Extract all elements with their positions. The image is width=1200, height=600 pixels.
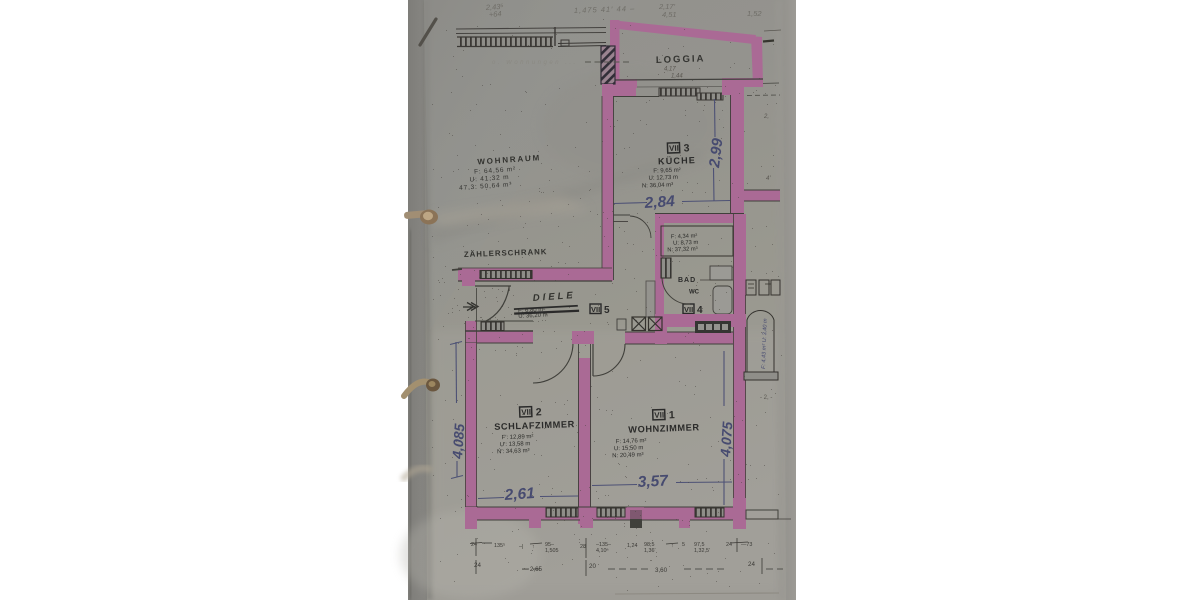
svg-text:1,505: 1,505 xyxy=(545,548,559,554)
svg-text:2,84: 2,84 xyxy=(643,193,676,212)
svg-text:N: 20,49 m³: N: 20,49 m³ xyxy=(612,452,644,459)
svg-text:2,61: 2,61 xyxy=(503,485,535,504)
svg-text:WC: WC xyxy=(689,290,700,296)
svg-text:VII: VII xyxy=(684,305,693,314)
svg-text:N: 37,32 m³: N: 37,32 m³ xyxy=(667,246,698,253)
svg-text:3: 3 xyxy=(683,142,689,154)
svg-text:N: 36,04 m³: N: 36,04 m³ xyxy=(642,182,674,189)
svg-text:BAD: BAD xyxy=(678,277,696,284)
svg-text:1,52: 1,52 xyxy=(747,9,762,18)
svg-text:↑: ↑ xyxy=(532,544,535,550)
svg-text:1,24: 1,24 xyxy=(627,543,638,549)
svg-text:–|: –| xyxy=(519,544,523,550)
svg-text:5: 5 xyxy=(682,542,685,548)
svg-text:- 2, -: - 2, - xyxy=(760,395,772,401)
svg-text:VII: VII xyxy=(591,305,600,314)
svg-text:2: 2 xyxy=(536,406,542,418)
svg-text:28: 28 xyxy=(580,544,586,550)
svg-text:VII: VII xyxy=(669,144,679,153)
svg-text:1: 1 xyxy=(669,409,675,421)
svg-text:VII: VII xyxy=(654,411,664,420)
svg-text:24: 24 xyxy=(748,561,755,568)
svg-text:F′: 12,89 m²: F′: 12,89 m² xyxy=(502,434,534,441)
svg-text:135⁵: 135⁵ xyxy=(494,543,505,549)
svg-text:1,32,5′: 1,32,5′ xyxy=(694,548,710,554)
svg-text:U: 12,73 m: U: 12,73 m xyxy=(649,175,679,182)
svg-text:3,60: 3,60 xyxy=(655,567,668,574)
svg-text:— 2,65: — 2,65 xyxy=(522,566,543,573)
svg-text:F: 9,65 m²: F: 9,65 m² xyxy=(653,168,681,175)
svg-text:F: 14,76 m²: F: 14,76 m² xyxy=(616,438,647,445)
svg-text:o. Wohnungen ...: o. Wohnungen ... xyxy=(492,60,578,66)
svg-text:LOGGIA: LOGGIA xyxy=(656,53,706,66)
svg-text:KÜCHE: KÜCHE xyxy=(658,155,696,166)
svg-text:2,: 2, xyxy=(763,114,769,120)
svg-text:U′: 13,58 m: U′: 13,58 m xyxy=(500,441,531,448)
svg-text:24: 24 xyxy=(474,562,481,569)
svg-text:U: 15,50 m: U: 15,50 m xyxy=(614,445,644,452)
svg-text:—73: —73 xyxy=(741,542,752,548)
svg-text:+64: +64 xyxy=(489,9,502,19)
svg-text:4,51: 4,51 xyxy=(662,10,677,19)
svg-text:1,36′: 1,36′ xyxy=(644,548,656,554)
svg-text:VII: VII xyxy=(521,408,531,417)
svg-text:1,44: 1,44 xyxy=(671,74,683,80)
svg-text:3,57: 3,57 xyxy=(637,472,669,491)
svg-text:4,10ⁿ: 4,10ⁿ xyxy=(596,548,608,554)
svg-text:4,17: 4,17 xyxy=(664,67,676,73)
svg-text:4,075: 4,075 xyxy=(717,421,735,458)
svg-text:20: 20 xyxy=(589,563,596,570)
svg-text:5: 5 xyxy=(604,305,610,316)
svg-text:N′: 34,63 m³: N′: 34,63 m³ xyxy=(497,448,530,455)
svg-text:4,085: 4,085 xyxy=(449,423,467,460)
